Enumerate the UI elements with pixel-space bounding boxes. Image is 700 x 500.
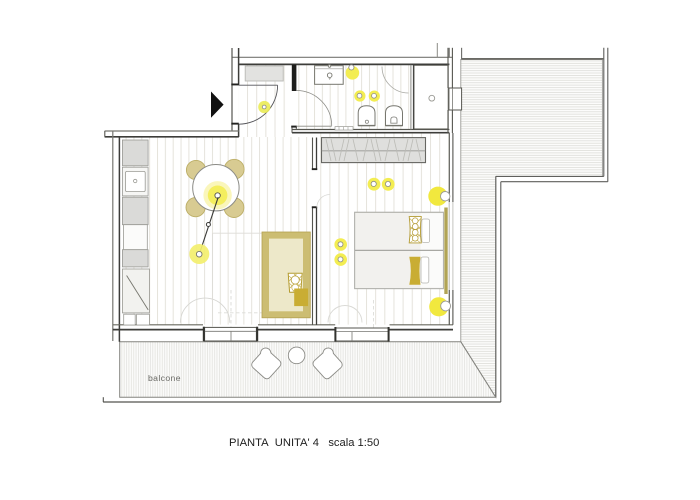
- svg-text:PIANTA UNITA' 4 scala 1:50: PIANTA UNITA' 4 scala 1:50: [229, 437, 379, 449]
- svg-text:balcone: balcone: [148, 373, 181, 383]
